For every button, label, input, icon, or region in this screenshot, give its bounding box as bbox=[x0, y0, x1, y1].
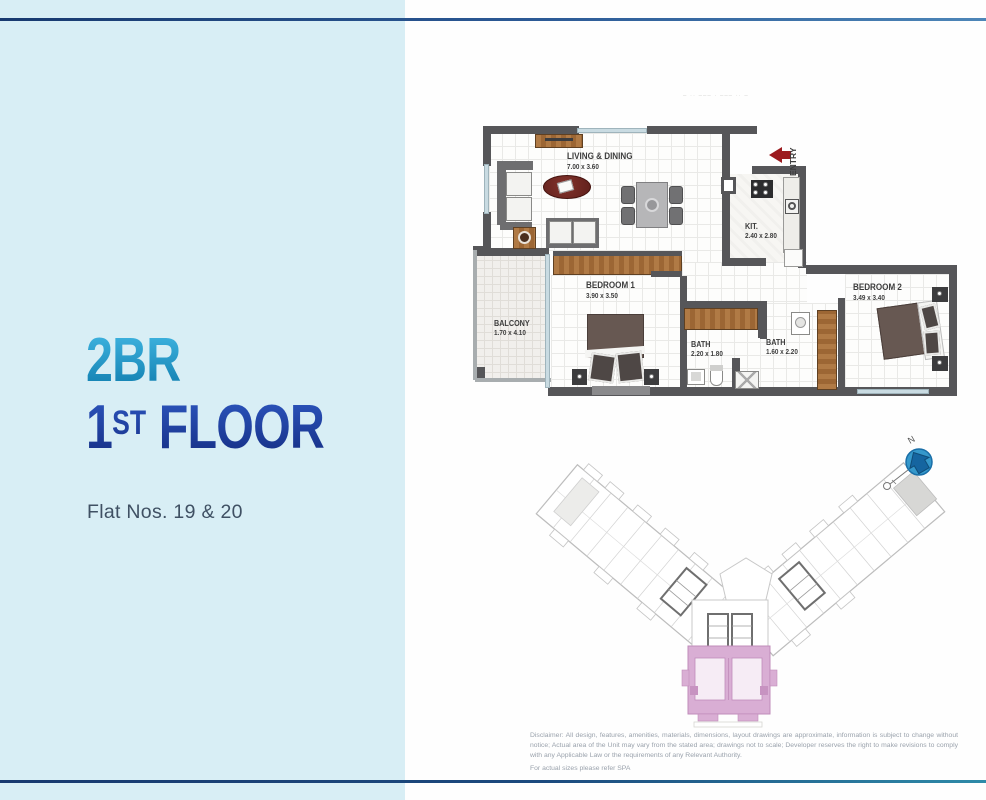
wall bbox=[806, 265, 957, 274]
stove-burner bbox=[753, 182, 758, 187]
window bbox=[484, 164, 489, 214]
stove-burner bbox=[763, 190, 768, 195]
pillow bbox=[923, 330, 941, 355]
wall bbox=[680, 301, 762, 308]
window bbox=[577, 128, 647, 133]
key-plan: N bbox=[524, 432, 968, 730]
room-label-bath2: BATH 1.60 x 2.20 bbox=[766, 337, 798, 356]
room-label-kitchen: KIT. 2.40 x 2.80 bbox=[745, 221, 777, 240]
window bbox=[545, 254, 550, 388]
balcony-rail bbox=[473, 250, 477, 380]
wall bbox=[838, 298, 845, 390]
dining-chair bbox=[621, 207, 635, 225]
wall bbox=[949, 265, 957, 393]
dining-chair bbox=[621, 186, 635, 204]
bed-base bbox=[592, 386, 650, 395]
hall-floor bbox=[682, 262, 807, 303]
sofa-cushion bbox=[506, 197, 532, 221]
dining-centerpiece bbox=[645, 198, 659, 212]
washing-machine-door bbox=[788, 202, 796, 210]
window bbox=[857, 389, 929, 394]
sofa-cushion bbox=[506, 172, 532, 196]
balcony-rail bbox=[475, 378, 551, 382]
tv-unit bbox=[535, 134, 583, 148]
entry-label: ENTRY bbox=[788, 136, 798, 176]
nightstand-lamp bbox=[937, 360, 942, 365]
sofa bbox=[497, 161, 533, 170]
room-label-bedroom1: BEDROOM 1 3.90 x 3.50 bbox=[586, 280, 635, 300]
sofa-cushion bbox=[573, 221, 596, 244]
kitchen-door bbox=[784, 249, 803, 267]
nightstand-lamp bbox=[937, 291, 942, 296]
bath-sink-basin bbox=[691, 372, 701, 381]
wall bbox=[483, 248, 549, 256]
faded-note-text: – ·· ––– · ––– ·· – bbox=[683, 93, 749, 99]
disclaimer-text: Disclaimer: All design, features, amenit… bbox=[530, 731, 958, 761]
bath-sink-basin bbox=[795, 317, 806, 328]
wall bbox=[760, 301, 767, 339]
north-label: N bbox=[906, 434, 917, 446]
pillow bbox=[616, 351, 645, 384]
toilet-tank bbox=[710, 365, 723, 371]
wall bbox=[647, 126, 757, 134]
wall bbox=[483, 126, 491, 166]
stove-burner bbox=[763, 182, 768, 187]
nightstand-lamp bbox=[649, 374, 654, 379]
dining-chair bbox=[669, 186, 683, 204]
room-label-balcony: BALCONY 1.70 x 4.10 bbox=[494, 318, 530, 337]
bath-vanity bbox=[684, 308, 758, 330]
wardrobe bbox=[817, 310, 837, 390]
room-label-bath1: BATH 2.20 x 1.80 bbox=[691, 339, 723, 358]
brochure-page: 2BR 1ST FLOOR Flat Nos. 19 & 20 – ·· –––… bbox=[0, 0, 986, 800]
pillow bbox=[588, 352, 617, 383]
door-frame-inner bbox=[724, 180, 733, 191]
entry-arrow-icon bbox=[769, 147, 782, 163]
sofa bbox=[497, 161, 506, 225]
wall bbox=[651, 271, 682, 277]
wall bbox=[722, 258, 766, 266]
wall bbox=[553, 251, 682, 256]
keyplan-trunk bbox=[692, 600, 768, 648]
nightstand-lamp bbox=[577, 374, 582, 379]
balcony-floor bbox=[476, 252, 546, 378]
wall bbox=[483, 126, 579, 134]
dining-chair bbox=[669, 207, 683, 225]
room-label-living: LIVING & DINING 7.00 x 3.60 bbox=[567, 151, 633, 171]
sofa-cushion bbox=[549, 221, 572, 244]
shower-tray bbox=[735, 371, 759, 389]
disclaimer-note: For actual sizes please refer SPA bbox=[530, 764, 958, 774]
tv bbox=[545, 138, 573, 141]
room-label-bedroom2: BEDROOM 2 3.49 x 3.40 bbox=[853, 282, 902, 302]
kitchen-counter bbox=[783, 177, 800, 253]
disclaimer: Disclaimer: All design, features, amenit… bbox=[530, 731, 958, 773]
wall bbox=[722, 126, 730, 266]
keyplan-highlighted-units bbox=[682, 646, 777, 727]
stove-burner bbox=[753, 190, 758, 195]
side-table-bowl bbox=[518, 231, 531, 244]
